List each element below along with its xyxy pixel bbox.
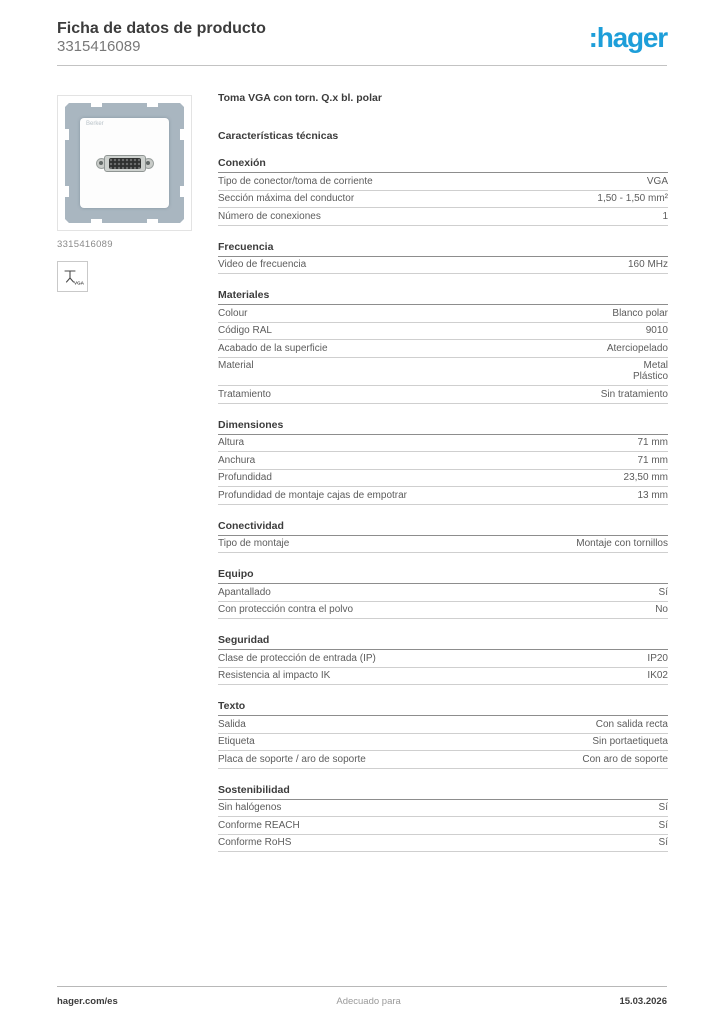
spec-row-label: Profundidad xyxy=(218,472,272,483)
spec-section-title: Dimensiones xyxy=(218,419,668,435)
spec-row: Tipo de montaje Montaje con tornillos xyxy=(218,536,668,554)
spec-row-label: Conforme RoHS xyxy=(218,837,291,848)
spec-row-value: Sí xyxy=(659,587,668,598)
document-title: Ficha de datos de producto xyxy=(57,20,266,38)
spec-row-value: Con aro de soporte xyxy=(582,754,668,765)
spec-row-label: Código RAL xyxy=(218,325,272,336)
spec-row: Profundidad de montaje cajas de empotrar… xyxy=(218,487,668,505)
spec-row: Apantallado Sí xyxy=(218,584,668,602)
spec-row-label: Sección máxima del conductor xyxy=(218,193,354,204)
spec-row-value: Sí xyxy=(659,802,668,813)
spec-row: Salida Con salida recta xyxy=(218,716,668,734)
frame-corner-cut xyxy=(60,98,70,108)
spec-row: Anchura 71 mm xyxy=(218,452,668,470)
frame-notch xyxy=(147,219,158,224)
frame-corner-cut xyxy=(180,219,190,229)
header-titles: Ficha de datos de producto 3315416089 xyxy=(57,20,266,57)
spec-row: Altura 71 mm xyxy=(218,435,668,453)
spec-row-label: Con protección contra el polvo xyxy=(218,604,353,615)
spec-section-rows: Colour Blanco polar Código RAL 9010 Acab… xyxy=(218,305,668,404)
spec-row-value: 160 MHz xyxy=(628,259,668,270)
spec-row-value: 9010 xyxy=(646,325,668,336)
spec-section: Seguridad Clase de protección de entrada… xyxy=(218,634,668,685)
spec-row: Video de frecuencia 160 MHz xyxy=(218,257,668,275)
spec-row-value: IP20 xyxy=(647,653,668,664)
spec-row: Profundidad 23,50 mm xyxy=(218,470,668,488)
spec-section-title: Conectividad xyxy=(218,520,668,536)
spec-row-label: Tipo de conector/toma de corriente xyxy=(218,176,373,187)
spec-row: Sección máxima del conductor 1,50 - 1,50… xyxy=(218,191,668,209)
spec-row-value: Aterciopelado xyxy=(607,343,668,354)
photo-caption: 3315416089 xyxy=(57,239,192,250)
spec-row-label: Tratamiento xyxy=(218,389,271,400)
spec-row-value: 1 xyxy=(662,211,668,222)
frame-corner-cut xyxy=(180,98,190,108)
frame-notch xyxy=(91,219,102,224)
spec-row-value: 71 mm xyxy=(637,455,668,466)
spec-section-rows: Apantallado Sí Con protección contra el … xyxy=(218,584,668,619)
frame-notch xyxy=(64,129,69,140)
spec-row-value: Metal Plástico xyxy=(633,360,668,382)
spec-row-value: Montaje con tornillos xyxy=(576,538,668,549)
spec-row: Acabado de la superficie Aterciopelado xyxy=(218,340,668,358)
spec-row-value: IK02 xyxy=(647,670,668,681)
footer-center-text: Adecuado para xyxy=(336,996,400,1007)
spec-row: Placa de soporte / aro de soporte Con ar… xyxy=(218,751,668,769)
spec-row: Material Metal Plástico xyxy=(218,358,668,387)
svg-text:VGA: VGA xyxy=(74,280,85,285)
frame-corner-cut xyxy=(60,219,70,229)
spec-row-value: VGA xyxy=(647,176,668,187)
spec-row: Tipo de conector/toma de corriente VGA xyxy=(218,173,668,191)
spec-section-title: Texto xyxy=(218,700,668,716)
spec-section: Materiales Colour Blanco polar Código RA… xyxy=(218,289,668,404)
spec-section: Texto Salida Con salida recta Etiqueta S… xyxy=(218,700,668,769)
specs-heading: Características técnicas xyxy=(218,130,668,142)
spec-row: Etiqueta Sin portaetiqueta xyxy=(218,734,668,752)
spec-row: Conforme RoHS Sí xyxy=(218,835,668,853)
spec-row-value: No xyxy=(655,604,668,615)
spec-row-value: 71 mm xyxy=(637,437,668,448)
spec-row-label: Clase de protección de entrada (IP) xyxy=(218,653,376,664)
spec-section: Sostenibilidad Sin halógenos Sí Conforme… xyxy=(218,784,668,853)
spec-section-rows: Altura 71 mm Anchura 71 mm Profundidad 2… xyxy=(218,435,668,505)
spec-row-label: Resistencia al impacto IK xyxy=(218,670,330,681)
spec-section: Frecuencia Video de frecuencia 160 MHz xyxy=(218,241,668,275)
spec-row: Tratamiento Sin tratamiento xyxy=(218,386,668,404)
spec-row: Resistencia al impacto IK IK02 xyxy=(218,668,668,686)
footer-date: 15.03.2026 xyxy=(619,996,667,1007)
mounting-frame-graphic: Berker xyxy=(65,103,184,223)
website-link[interactable]: hager.com/es xyxy=(57,996,118,1007)
frame-notch xyxy=(91,102,102,107)
spec-row-label: Sin halógenos xyxy=(218,802,281,813)
socket-plate-graphic: Berker xyxy=(80,118,169,208)
spec-section-title: Conexión xyxy=(218,157,668,173)
spec-row-value: Sin tratamiento xyxy=(601,389,668,400)
spec-row-value: Blanco polar xyxy=(612,308,668,319)
product-photo: Berker xyxy=(57,95,192,231)
socket-symbol-icon: VGA xyxy=(61,265,85,289)
spec-row: Con protección contra el polvo No xyxy=(218,602,668,620)
specs-sections: Conexión Tipo de conector/toma de corrie… xyxy=(218,157,668,852)
spec-row-label: Conforme REACH xyxy=(218,820,300,831)
spec-row: Conforme REACH Sí xyxy=(218,817,668,835)
spec-row-label: Salida xyxy=(218,719,246,730)
frame-notch xyxy=(147,102,158,107)
spec-section: Conectividad Tipo de montaje Montaje con… xyxy=(218,520,668,554)
plate-brand-mark: Berker xyxy=(86,121,104,127)
spec-row-label: Colour xyxy=(218,308,247,319)
spec-row-value: Sí xyxy=(659,820,668,831)
spec-section: Dimensiones Altura 71 mm Anchura 71 mm P… xyxy=(218,419,668,505)
spec-row-label: Acabado de la superficie xyxy=(218,343,328,354)
spec-row-label: Video de frecuencia xyxy=(218,259,306,270)
spec-row-label: Profundidad de montaje cajas de empotrar xyxy=(218,490,407,501)
frame-notch xyxy=(180,186,185,197)
spec-row: Código RAL 9010 xyxy=(218,323,668,341)
spec-row-label: Apantallado xyxy=(218,587,271,598)
spec-section-rows: Tipo de conector/toma de corriente VGA S… xyxy=(218,173,668,226)
spec-section-rows: Tipo de montaje Montaje con tornillos xyxy=(218,536,668,554)
frame-notch xyxy=(180,129,185,140)
spec-row-value: Sí xyxy=(659,837,668,848)
hager-logo: :hager xyxy=(589,24,667,52)
spec-row-label: Tipo de montaje xyxy=(218,538,289,549)
spec-row-value: 13 mm xyxy=(637,490,668,501)
product-name: Toma VGA con torn. Q.x bl. polar xyxy=(218,92,668,104)
spec-section-rows: Clase de protección de entrada (IP) IP20… xyxy=(218,650,668,685)
spec-row: Clase de protección de entrada (IP) IP20 xyxy=(218,650,668,668)
spec-row-value: Con salida recta xyxy=(596,719,668,730)
product-image-column: Berker 3315416089 VGA xyxy=(57,95,192,292)
spec-row-label: Número de conexiones xyxy=(218,211,321,222)
spec-section-rows: Sin halógenos Sí Conforme REACH Sí Confo… xyxy=(218,800,668,853)
spec-section-rows: Salida Con salida recta Etiqueta Sin por… xyxy=(218,716,668,769)
spec-row-value: 23,50 mm xyxy=(624,472,668,483)
spec-row-value: 1,50 - 1,50 mm² xyxy=(597,193,668,204)
spec-row-label: Altura xyxy=(218,437,244,448)
dsub-pins xyxy=(109,158,141,169)
spec-section-title: Materiales xyxy=(218,289,668,305)
spec-row-label: Placa de soporte / aro de soporte xyxy=(218,754,366,765)
product-reference: 3315416089 xyxy=(57,38,266,57)
spec-section: Equipo Apantallado Sí Con protección con… xyxy=(218,568,668,619)
spec-section: Conexión Tipo de conector/toma de corrie… xyxy=(218,157,668,226)
spec-section-title: Seguridad xyxy=(218,634,668,650)
product-datasheet-page: Ficha de datos de producto 3315416089 :h… xyxy=(0,0,724,1024)
spec-section-title: Frecuencia xyxy=(218,241,668,257)
spec-row-label: Etiqueta xyxy=(218,736,255,747)
spec-section-title: Equipo xyxy=(218,568,668,584)
spec-row-value: Sin portaetiqueta xyxy=(592,736,668,747)
page-header: Ficha de datos de producto 3315416089 :h… xyxy=(57,20,667,66)
spec-row: Número de conexiones 1 xyxy=(218,208,668,226)
spec-row-label: Material xyxy=(218,360,254,371)
spec-row-label: Anchura xyxy=(218,455,255,466)
frame-notch xyxy=(64,186,69,197)
spec-section-title: Sostenibilidad xyxy=(218,784,668,800)
spec-row: Colour Blanco polar xyxy=(218,305,668,323)
vga-connector-graphic xyxy=(96,155,154,172)
specs-column: Toma VGA con torn. Q.x bl. polar Caracte… xyxy=(218,92,668,852)
vga-socket-pictogram: VGA xyxy=(57,261,88,292)
dsub-shell xyxy=(104,155,146,172)
page-footer: hager.com/es Adecuado para 15.03.2026 xyxy=(57,986,667,1007)
spec-row: Sin halógenos Sí xyxy=(218,800,668,818)
spec-section-rows: Video de frecuencia 160 MHz xyxy=(218,257,668,275)
